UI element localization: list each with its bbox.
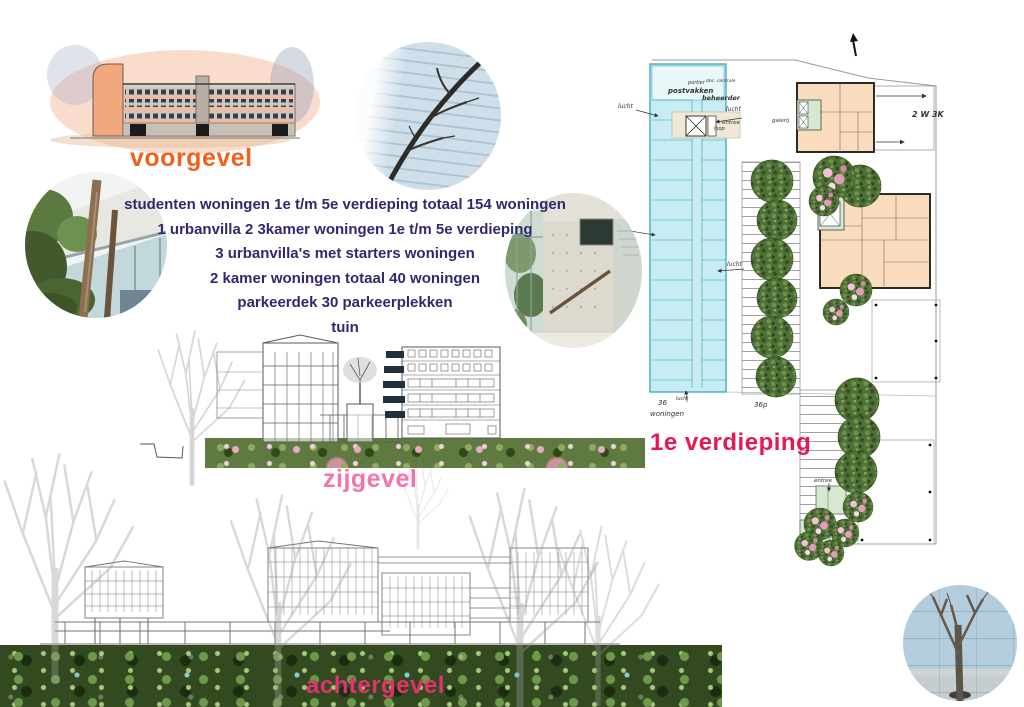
tree-tile-photo-circle (903, 585, 1017, 701)
caption-voorgevel: voorgevel (130, 144, 253, 173)
plan-label-loop-2: loop (822, 196, 833, 202)
caption-achtergevel: achtergevel (306, 672, 445, 700)
caption-zijgevel: zijgevel (323, 465, 417, 494)
plan-label-unit-mix: 2 W 3K (912, 110, 945, 119)
line-art-layer: portier postvakken doc. centrale beheerd… (0, 0, 1024, 707)
program-line-6: tuin (100, 316, 590, 341)
branch-photo-circle (355, 42, 501, 190)
student-housing-block (650, 64, 740, 392)
plan-label-beheerder: beheerder (702, 94, 741, 102)
plan-label-portier: portier (687, 80, 706, 86)
plan-label-lucht-1: lucht (618, 103, 634, 110)
plan-label-galerij: galerij (772, 118, 790, 124)
plan-label-units-word: woningen (650, 410, 684, 418)
urbanvilla-1 (797, 83, 874, 152)
presentation-board: portier postvakken doc. centrale beheerd… (0, 0, 1024, 707)
plan-label-centrale: doc. centrale (706, 78, 736, 84)
plan-label-entree-2: entree (814, 478, 833, 484)
north-arrow-icon (850, 33, 858, 56)
program-line-2: 1 urbanvilla 2 3kamer woningen 1e t/m 5e… (100, 218, 590, 243)
program-line-3: 3 urbanvilla's met starters woningen (100, 242, 590, 267)
branch-drawing (355, 42, 501, 190)
bare-tree-drawing (903, 585, 1017, 701)
plan-label-lucht-4: lucht (727, 261, 743, 268)
program-text-block: studenten woningen 1e t/m 5e verdieping … (100, 193, 590, 340)
plan-label-units-number: 36 (658, 399, 667, 407)
plan-label-lucht-5: lucht (676, 396, 689, 402)
floor-plan: portier postvakken doc. centrale beheerd… (614, 33, 945, 566)
voorgevel-sketch (47, 45, 320, 154)
zijgevel-elevation (140, 331, 500, 486)
plan-label-loop: loop (714, 126, 725, 132)
caption-1e-verdieping: 1e verdieping (650, 429, 811, 457)
program-line-4: 2 kamer woningen totaal 40 woningen (100, 267, 590, 292)
plan-label-parking: 36p (754, 401, 768, 409)
program-line-5: parkeerdek 30 parkeerplekken (100, 291, 590, 316)
plan-label-lucht-3: lucht (726, 106, 742, 113)
program-line-1: studenten woningen 1e t/m 5e verdieping … (100, 193, 590, 218)
